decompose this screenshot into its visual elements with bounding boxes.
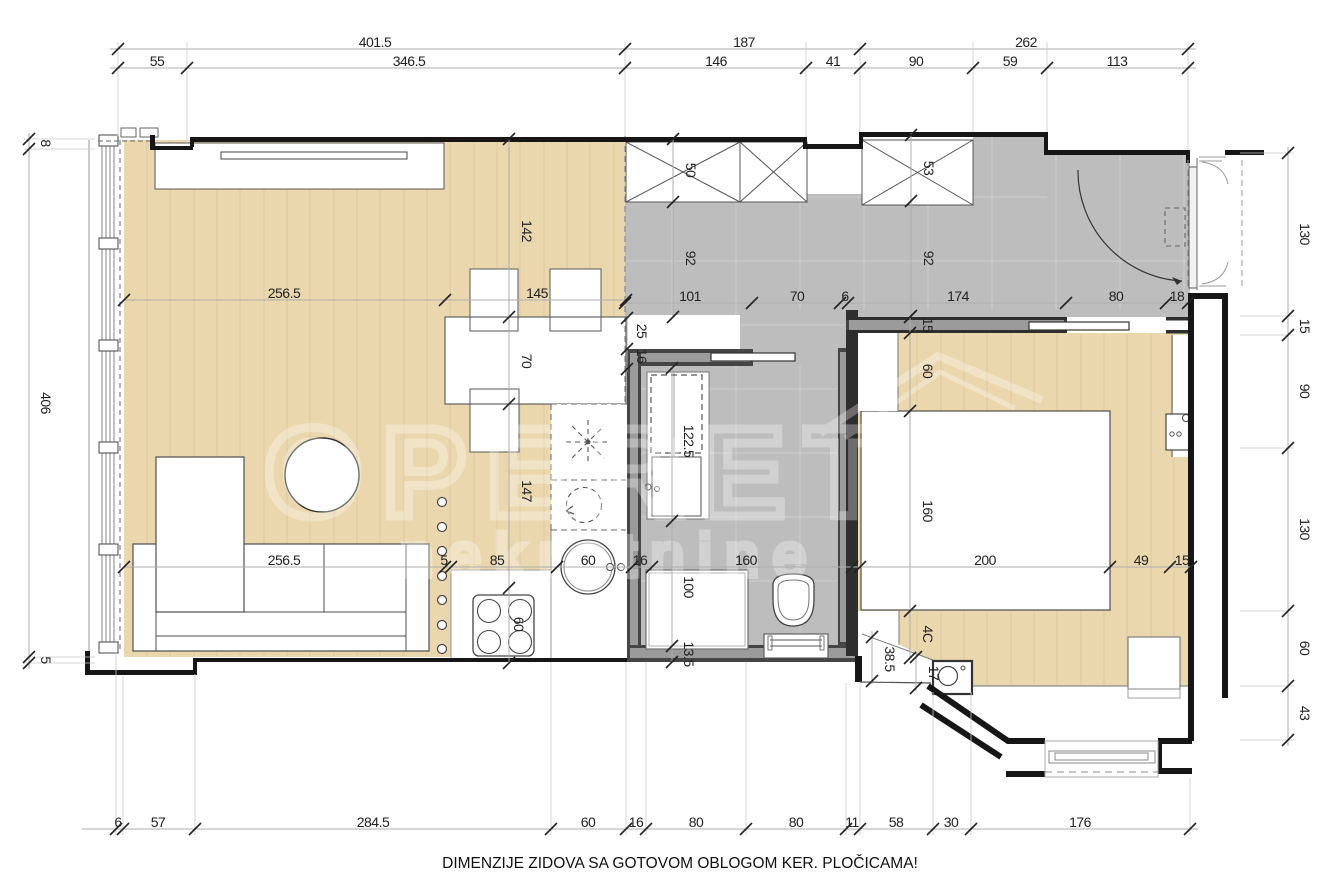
svg-text:15: 15 bbox=[920, 318, 936, 333]
svg-text:60: 60 bbox=[1297, 641, 1313, 656]
svg-text:11: 11 bbox=[845, 814, 859, 830]
svg-text:60: 60 bbox=[511, 617, 527, 632]
svg-text:187: 187 bbox=[733, 34, 756, 50]
svg-text:85: 85 bbox=[490, 552, 505, 568]
svg-text:6: 6 bbox=[841, 288, 849, 304]
svg-text:16: 16 bbox=[634, 349, 650, 364]
svg-text:401.5: 401.5 bbox=[359, 34, 392, 50]
svg-text:142: 142 bbox=[519, 220, 535, 243]
svg-text:15: 15 bbox=[1175, 552, 1190, 568]
svg-text:80: 80 bbox=[689, 814, 704, 830]
svg-text:58: 58 bbox=[889, 814, 904, 830]
svg-text:90: 90 bbox=[909, 53, 924, 69]
svg-text:70: 70 bbox=[519, 354, 535, 369]
svg-text:130: 130 bbox=[1297, 223, 1313, 246]
svg-text:70: 70 bbox=[790, 288, 805, 304]
svg-text:174: 174 bbox=[947, 288, 970, 304]
svg-text:16: 16 bbox=[633, 552, 648, 568]
svg-text:80: 80 bbox=[789, 814, 804, 830]
svg-text:101: 101 bbox=[679, 288, 702, 304]
svg-text:13.5: 13.5 bbox=[681, 641, 697, 667]
svg-text:60: 60 bbox=[581, 552, 596, 568]
svg-text:55: 55 bbox=[150, 53, 165, 69]
svg-text:80: 80 bbox=[1109, 288, 1124, 304]
svg-text:6: 6 bbox=[114, 814, 122, 830]
svg-text:8: 8 bbox=[38, 139, 54, 147]
svg-text:92: 92 bbox=[683, 251, 699, 266]
svg-text:50: 50 bbox=[683, 163, 699, 178]
svg-text:49: 49 bbox=[1134, 552, 1149, 568]
svg-text:122.5: 122.5 bbox=[681, 425, 697, 458]
svg-text:41: 41 bbox=[826, 53, 841, 69]
svg-text:160: 160 bbox=[735, 552, 758, 568]
svg-text:5: 5 bbox=[38, 656, 54, 664]
svg-text:176: 176 bbox=[1069, 814, 1092, 830]
svg-text:130: 130 bbox=[1297, 518, 1313, 541]
svg-text:43: 43 bbox=[1297, 706, 1313, 721]
svg-text:90: 90 bbox=[1297, 384, 1313, 399]
svg-text:4C: 4C bbox=[920, 626, 936, 643]
svg-text:53: 53 bbox=[921, 161, 937, 176]
svg-text:57: 57 bbox=[151, 814, 166, 830]
svg-text:30: 30 bbox=[944, 814, 959, 830]
svg-text:346.5: 346.5 bbox=[393, 53, 426, 69]
svg-text:146: 146 bbox=[705, 53, 728, 69]
svg-text:160: 160 bbox=[920, 500, 936, 523]
svg-text:60: 60 bbox=[920, 364, 936, 379]
svg-text:256.5: 256.5 bbox=[268, 552, 301, 568]
svg-text:147: 147 bbox=[519, 480, 535, 503]
svg-text:200: 200 bbox=[974, 552, 997, 568]
svg-text:60: 60 bbox=[581, 814, 596, 830]
svg-text:15: 15 bbox=[1297, 319, 1313, 334]
svg-text:nekretnine: nekretnine bbox=[400, 522, 820, 589]
svg-text:59: 59 bbox=[1003, 53, 1018, 69]
svg-text:17: 17 bbox=[926, 666, 942, 681]
svg-text:5: 5 bbox=[440, 552, 448, 568]
svg-text:92: 92 bbox=[921, 251, 937, 266]
svg-text:38.5: 38.5 bbox=[882, 646, 898, 672]
svg-text:100: 100 bbox=[681, 576, 697, 599]
svg-text:262: 262 bbox=[1015, 34, 1038, 50]
svg-text:256.5: 256.5 bbox=[268, 285, 301, 301]
svg-text:113: 113 bbox=[1107, 53, 1129, 69]
svg-text:406: 406 bbox=[38, 392, 54, 415]
svg-text:16: 16 bbox=[629, 814, 644, 830]
svg-text:DIMENZIJE ZIDOVA SA GOTOVOM OB: DIMENZIJE ZIDOVA SA GOTOVOM OBLOGOM KER.… bbox=[442, 855, 918, 872]
svg-text:18: 18 bbox=[1170, 288, 1185, 304]
svg-text:284.5: 284.5 bbox=[357, 814, 390, 830]
svg-text:145: 145 bbox=[526, 285, 549, 301]
svg-text:25: 25 bbox=[634, 324, 650, 339]
